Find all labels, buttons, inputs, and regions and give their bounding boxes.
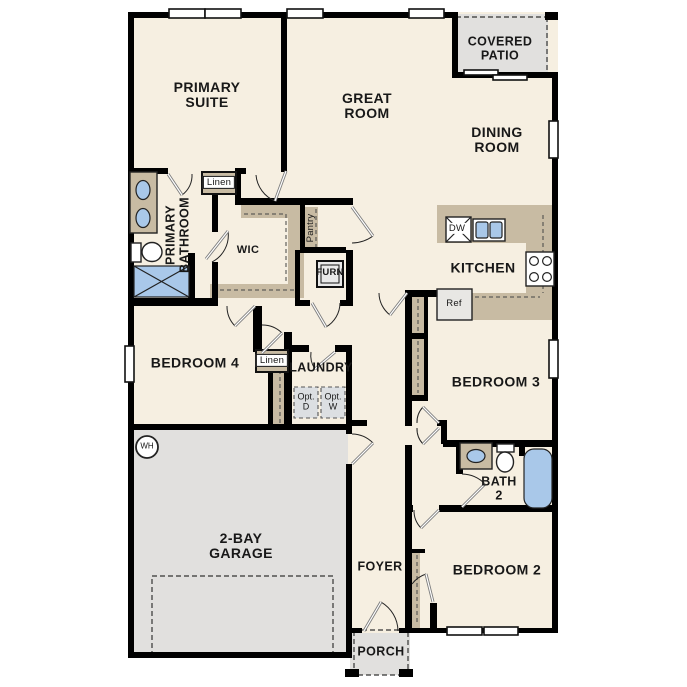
window-bedroom2-2: [484, 627, 518, 635]
bath2-toilet-tank: [497, 444, 514, 452]
primary-toilet-tank: [131, 243, 141, 262]
porch-post-right: [399, 669, 413, 677]
floor-plan: PRIMARYSUITE GREATROOM COVEREDPATIO DINI…: [0, 0, 687, 687]
wic-shelf-bottom: [210, 284, 304, 298]
bedroom2-closet: [411, 553, 420, 628]
label-bedroom2: BEDROOM 2: [453, 562, 541, 577]
window-primary-2: [205, 9, 241, 18]
label-bath2: BATH2: [481, 476, 516, 503]
window-bedroom3: [549, 340, 558, 378]
label-bedroom3: BEDROOM 3: [452, 374, 540, 389]
label-covered-patio: COVEREDPATIO: [468, 36, 533, 63]
label-primary-suite: PRIMARYSUITE: [174, 80, 241, 110]
label-dining-room: DININGROOM: [471, 125, 522, 155]
window-primary-1: [169, 9, 205, 18]
bath2-toilet-bowl: [497, 452, 514, 472]
window-dining: [549, 121, 558, 158]
label-kitchen: KITCHEN: [450, 260, 515, 275]
primary-sink-2: [136, 209, 150, 228]
label-laundry: LAUNDRY: [289, 361, 352, 375]
label-linen-hall: Linen: [256, 356, 288, 366]
bath2-sink: [467, 450, 485, 463]
label-linen-primary: Linen: [203, 178, 235, 188]
label-refrigerator: Ref: [446, 299, 461, 309]
label-dishwasher: DW: [448, 224, 466, 234]
label-furnace: FURN: [316, 268, 343, 278]
label-foyer: FOYER: [357, 560, 402, 574]
primary-toilet-bowl: [142, 243, 162, 262]
window-great-room-2: [409, 9, 444, 18]
porch-post-left: [345, 669, 359, 677]
kitchen-sink: [473, 219, 505, 241]
label-porch: PORCH: [357, 645, 404, 659]
window-bedroom2-1: [447, 627, 482, 635]
window-bedroom4: [125, 346, 134, 382]
label-bedroom4: BEDROOM 4: [151, 355, 239, 370]
label-primary-bathroom: PRIMARYBATHROOM: [165, 197, 192, 273]
bath2-tub: [524, 449, 552, 508]
window-great-room-1: [287, 9, 323, 18]
label-garage: 2-BAYGARAGE: [209, 531, 273, 561]
stove: [526, 252, 554, 286]
label-great-room: GREATROOM: [342, 91, 392, 121]
label-water-heater: WH: [140, 443, 153, 452]
label-opt-dryer: Opt.D: [297, 392, 314, 411]
label-pantry: Pantry: [306, 214, 316, 243]
patio-slider-panel-2: [493, 75, 527, 80]
label-opt-washer: Opt.W: [324, 392, 341, 411]
label-wic: WIC: [237, 245, 260, 257]
primary-sink-1: [136, 181, 150, 200]
